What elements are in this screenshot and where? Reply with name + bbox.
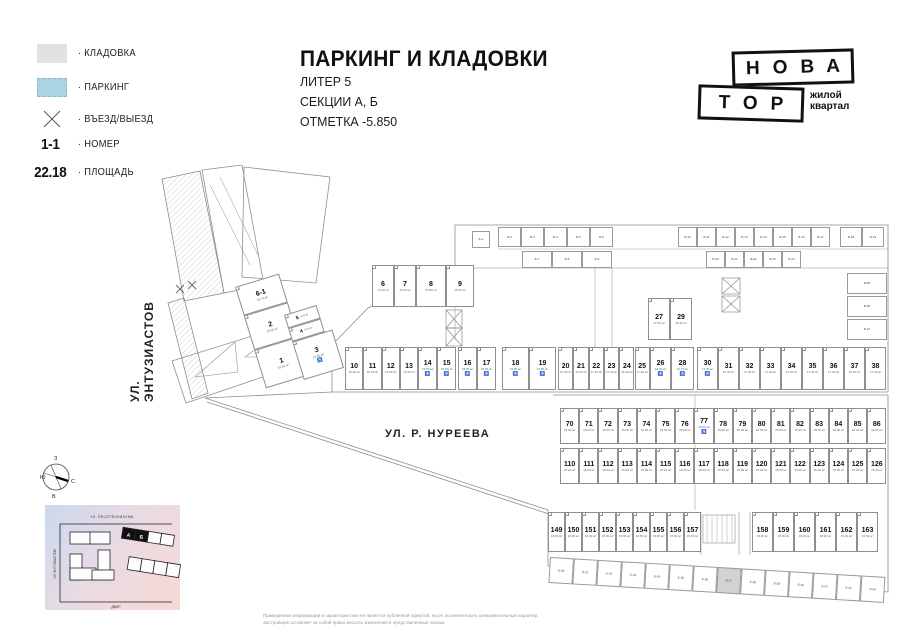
stall-number: 15 [443, 360, 451, 367]
stall-number: 71 [585, 421, 593, 428]
parking-stall-75: 7515.00 м² [656, 408, 675, 444]
stall-area: 15.00 м² [813, 429, 824, 432]
stall-area: 18.00 м² [799, 535, 810, 538]
stall-area: 15.00 м² [670, 535, 681, 538]
parking-stall-26: 2618.00 м²♿ [650, 347, 671, 390]
page-title: ПАРКИНГ И КЛАДОВКИ [300, 46, 548, 72]
stall-number: 85 [854, 421, 862, 428]
parking-stall-153: 15315.00 м² [616, 512, 633, 552]
stall-number: 33 [767, 363, 775, 370]
stall-number: 156 [670, 527, 682, 534]
parking-stall-24: 2415.30 м² [619, 347, 634, 390]
stall-area: 15.30 м² [723, 371, 734, 374]
parking-stall-162: 16215.00 м² [836, 512, 857, 552]
parking-stall-163: 16315.50 м² [857, 512, 878, 552]
parking-stall-33: 3317.40 м² [760, 347, 781, 390]
title-block: ПАРКИНГ И КЛАДОВКИ ЛИТЕР 5 СЕКЦИИ А, Б О… [300, 46, 561, 132]
disclaimer-line-1: Приведенная информация и характеристики … [263, 612, 603, 619]
stall-number: 6 [381, 281, 385, 288]
stall-number: 112 [602, 461, 613, 468]
stall-number: 23 [608, 363, 616, 370]
parking-stall-121: 12115.00 м² [771, 448, 790, 484]
parking-stall-72: 7215.00 м² [598, 408, 617, 444]
stall-area: 15.00 м² [756, 469, 767, 472]
storage-cell-Б-23: Б-23 [763, 251, 782, 268]
stall-area: 15.00 м² [871, 429, 882, 432]
stall-number: 111 [583, 461, 594, 468]
stall-area: 15.00 м² [794, 429, 805, 432]
stall-number: 160 [799, 527, 811, 534]
stall-number: 153 [619, 527, 631, 534]
stall-area: 15.00 м² [564, 429, 575, 432]
stall-number: 82 [796, 421, 804, 428]
storage-cell-Б-34: Б-34 [644, 563, 669, 590]
storage-swatch [37, 44, 67, 63]
parking-stall-160: 16018.00 м² [794, 512, 815, 552]
parking-stall-10: 1016.20 м² [345, 347, 363, 390]
parking-stall-22: 2217.40 м² [589, 347, 604, 390]
stall-area: 15.00 м² [737, 429, 748, 432]
storage-cell-Б-6: Б-6 [590, 227, 613, 247]
stall-area: 15.00 м² [564, 469, 575, 472]
storage-cell-Б-1: Б-1 [472, 231, 490, 248]
stall-area: 16.20 м² [348, 371, 359, 374]
parking-stall-110: 11015.00 м² [560, 448, 579, 484]
storage-cell-Б-30: Б-30 [548, 557, 573, 584]
parking-stall-116: 11615.00 м² [675, 448, 694, 484]
stall-area: 16.50 м² [636, 535, 647, 538]
stall-area: 15.00 м² [737, 469, 748, 472]
legend-area-example: 22.18 [35, 164, 66, 181]
parking-stall-81: 8115.00 м² [771, 408, 790, 444]
parking-stall-83: 8315.00 м² [810, 408, 829, 444]
wheelchair-icon: ♿ [317, 358, 324, 364]
svg-text:Ю: Ю [40, 475, 46, 481]
parking-stall-32: 3217.40 м² [739, 347, 760, 390]
stall-area: 15.00 м² [794, 469, 805, 472]
parking-stall-113: 11315.00 м² [618, 448, 637, 484]
stall-number: 120 [756, 461, 768, 468]
parking-stall-17: 1718.00 м²♿ [477, 347, 496, 390]
parking-stall-155: 15515.00 м² [650, 512, 667, 552]
storage-cell-Б-36: Б-36 [692, 566, 717, 593]
stall-number: 21 [577, 363, 585, 370]
storage-cell-Б-27: Б-27 [847, 319, 887, 340]
svg-text:С: С [71, 479, 75, 485]
stall-number: 27 [655, 314, 663, 321]
parking-stall-114: 11415.00 м² [637, 448, 656, 484]
storage-cell-Б-5: Б-5 [567, 227, 590, 247]
parking-stall-150: 15018.00 м² [565, 512, 582, 552]
stall-area: 17.40 м² [606, 371, 617, 374]
parking-stall-34: 3415.30 м² [781, 347, 802, 390]
stall-number: 9 [458, 281, 462, 288]
stall-area: 15.00 м² [602, 429, 613, 432]
stall-number: 36 [830, 363, 838, 370]
parking-stall-124: 12415.00 м² [829, 448, 848, 484]
stall-area: 17.40 м² [560, 371, 571, 374]
entry-exit-icon [35, 108, 69, 130]
parking-stall-152: 15215.00 м² [599, 512, 616, 552]
stall-area: 18.00 м² [585, 535, 596, 538]
storage-cell-Б-38: Б-38 [740, 568, 765, 595]
parking-stall-9: 915.00 м² [446, 265, 474, 307]
wheelchair-icon: ♿ [658, 372, 664, 377]
parking-stall-70: 7015.00 м² [560, 408, 579, 444]
stall-number: 113 [622, 461, 633, 468]
storage-cell-Б-4: Б-4 [544, 227, 567, 247]
stall-number: 17 [483, 360, 491, 367]
parking-stall-74: 7415.00 м² [637, 408, 656, 444]
storage-cell-Б-2: Б-2 [498, 227, 521, 247]
stall-number: 25 [638, 363, 646, 370]
storage-cell-Б-7: Б-7 [522, 251, 552, 268]
stall-number: 78 [719, 421, 727, 428]
stall-number: 29 [677, 314, 685, 321]
stall-area: 15.00 м² [602, 535, 613, 538]
stall-area: 17.00 м² [653, 322, 664, 325]
stall-area: 15.30 м² [621, 371, 632, 374]
logo-tagline: жилой квартал [810, 90, 849, 112]
storage-cell-Б-33: Б-33 [620, 561, 645, 588]
stall-number: 31 [725, 363, 733, 370]
parking-stall-161: 16118.00 м² [815, 512, 836, 552]
stall-number: 150 [568, 527, 580, 534]
stall-area: 15.00 м² [852, 429, 863, 432]
stall-area: 15.00 м² [602, 469, 613, 472]
stall-number: 8 [429, 281, 433, 288]
storage-cell-Б-42: Б-42 [836, 574, 861, 601]
parking-stall-154: 15416.50 м² [633, 512, 650, 552]
storage-cell-Б-40: Б-40 [788, 571, 813, 598]
subtitle-liter: ЛИТЕР 5 [300, 72, 548, 92]
stall-number: 163 [862, 527, 874, 534]
stall-area: 8.00 м² [304, 327, 313, 332]
stall-number: 126 [871, 461, 883, 468]
stall-area: 8.00 м² [300, 314, 309, 319]
stall-area: 15.00 м² [775, 429, 786, 432]
storage-cell-Б-37: Б-37 [716, 567, 741, 594]
parking-stall-120: 12015.00 м² [752, 448, 771, 484]
stall-number: 149 [551, 527, 563, 534]
stall-number: 77 [700, 418, 708, 425]
svg-text:УЛ. ЭНТУЗИАСТОВ: УЛ. ЭНТУЗИАСТОВ [53, 549, 57, 578]
parking-stall-149: 14918.00 м² [548, 512, 565, 552]
storage-cell-Б-19: Б-19 [862, 227, 884, 247]
storage-cell-Б-11: Б-11 [697, 227, 716, 247]
stall-number: 80 [758, 421, 766, 428]
stall-area: 16.20 м² [403, 371, 414, 374]
parking-stall-82: 8215.00 м² [790, 408, 809, 444]
parking-stall-14: 1415.50 м²♿ [418, 347, 437, 390]
parking-swatch [37, 78, 67, 97]
stall-number: 122 [794, 461, 806, 468]
floor-plan: 614.40 м²715.00 м²823.80 м²915.00 м²2717… [150, 165, 890, 600]
stall-number: 151 [585, 527, 597, 534]
stall-area: 17.40 м² [870, 371, 881, 374]
storage-cell-Б-25: Б-25 [847, 273, 887, 294]
parking-stall-25: 2517.40 м² [635, 347, 650, 390]
parking-stall-38: 3817.40 м² [865, 347, 886, 390]
parking-stall-19: 1921.80 м²♿ [529, 347, 556, 390]
storage-cell-Б-31: Б-31 [572, 558, 597, 585]
stall-area: 15.30 м² [575, 371, 586, 374]
stall-number: 125 [852, 461, 864, 468]
storage-cell-Б-18: Б-18 [840, 227, 862, 247]
stall-area: 17.40 м² [744, 371, 755, 374]
wheelchair-icon: ♿ [484, 372, 490, 377]
stall-area: 15.00 м² [641, 429, 652, 432]
stall-number: 72 [604, 421, 612, 428]
parking-stall-12: 1216.20 м² [382, 347, 400, 390]
storage-cell-Б-32: Б-32 [596, 560, 621, 587]
storage-cell-Б-3: Б-3 [521, 227, 544, 247]
wheelchair-icon: ♿ [425, 372, 431, 377]
stall-area: 14.40 м² [377, 289, 388, 292]
parking-stall-125: 12515.00 м² [848, 448, 867, 484]
storage-cell-Б-12: Б-12 [716, 227, 735, 247]
stall-number: 74 [642, 421, 650, 428]
stall-number: 155 [653, 527, 665, 534]
parking-stall-151: 15118.00 м² [582, 512, 599, 552]
wheelchair-icon: ♿ [465, 372, 471, 377]
parking-stall-84: 8415.00 м² [829, 408, 848, 444]
stall-number: 123 [813, 461, 825, 468]
parking-stall-7: 715.00 м² [394, 265, 416, 307]
parking-stall-157: 15715.00 м² [684, 512, 701, 552]
stall-area: 15.00 м² [841, 535, 852, 538]
wheelchair-icon: ♿ [444, 372, 450, 377]
stall-area: 15.00 м² [833, 429, 844, 432]
parking-stall-76: 7615.00 м² [675, 408, 694, 444]
parking-stall-78: 7815.00 м² [714, 408, 733, 444]
stall-area: 15.00 м² [583, 469, 594, 472]
stall-area: 18.00 м² [568, 535, 579, 538]
parking-stall-122: 12215.00 м² [790, 448, 809, 484]
stall-area: 17.40 м² [591, 371, 602, 374]
parking-stall-21: 2115.30 м² [573, 347, 588, 390]
storage-cell-Б-15: Б-15 [773, 227, 792, 247]
stall-number: 76 [681, 421, 689, 428]
parking-stall-79: 7915.00 м² [733, 408, 752, 444]
stall-area: 15.00 м² [679, 429, 690, 432]
stall-number: 14 [424, 360, 432, 367]
stall-area: 15.50 м² [862, 535, 873, 538]
stall-area: 15.00 м² [756, 429, 767, 432]
stall-number: 32 [746, 363, 754, 370]
parking-stall-118: 11815.00 м² [714, 448, 733, 484]
stall-area: 15.00 м² [698, 469, 709, 472]
logo-box-bottom: ТОР [697, 84, 804, 122]
stall-area: 15.00 м² [653, 535, 664, 538]
stall-number: 152 [602, 527, 614, 534]
parking-stall-37: 3715.30 м² [844, 347, 865, 390]
parking-stall-73: 7315.00 м² [618, 408, 637, 444]
stall-number: 124 [833, 461, 845, 468]
parking-stall-20: 2017.40 м² [558, 347, 573, 390]
parking-stall-156: 15615.00 м² [667, 512, 684, 552]
stall-number: 83 [815, 421, 823, 428]
disclaimer-line-2: Застройщик оставляет за собой право внос… [263, 619, 603, 626]
storage-cell-Б-26: Б-26 [847, 296, 887, 317]
stall-area: 15.20 м² [675, 322, 686, 325]
stall-number: 159 [778, 527, 790, 534]
location-minimap: З Ю С В УЛ. ЛЕСОТЕХНИКУМА УЛ. ЭНТУЗИАСТО… [40, 452, 190, 617]
svg-text:В: В [52, 494, 56, 500]
storage-cell-Б-14: Б-14 [754, 227, 773, 247]
stall-number: 84 [834, 421, 842, 428]
parking-stall-159: 15915.00 м² [773, 512, 794, 552]
parking-stall-15: 1515.50 м²♿ [437, 347, 456, 390]
stall-number: 161 [820, 527, 832, 534]
parking-stall-117: 11715.00 м² [694, 448, 713, 484]
stall-number: 26 [657, 360, 665, 367]
stall-number: 86 [873, 421, 881, 428]
stall-number: 18 [512, 360, 520, 367]
stall-area: 15.00 м² [871, 469, 882, 472]
stall-number: 110 [564, 461, 575, 468]
storage-cell-Б-20: Б-20 [706, 251, 725, 268]
subtitle-sections: СЕКЦИИ А, Б [300, 92, 548, 112]
novator-logo: НОВА ТОР жилой квартал [690, 40, 870, 125]
storage-cell-Б-39: Б-39 [764, 570, 789, 597]
legend-number-example: 1-1 [35, 136, 66, 153]
legend-area-label: · ПЛОЩАДЬ [78, 167, 134, 178]
stall-area: 29.50 м² [266, 327, 278, 333]
parking-stall-115: 11515.00 м² [656, 448, 675, 484]
stall-number: 34 [788, 363, 796, 370]
stall-number: 158 [757, 527, 769, 534]
parking-stall-8: 823.80 м² [416, 265, 446, 307]
stall-number: 73 [623, 421, 631, 428]
stall-area: 15.00 м² [717, 429, 728, 432]
storage-cell-Б-8: Б-8 [552, 251, 582, 268]
stall-area: 23.80 м² [425, 289, 436, 292]
parking-stall-77: 7715.00 м²♿ [694, 408, 713, 444]
parking-stall-85: 8515.00 м² [848, 408, 867, 444]
stall-area: 15.00 м² [833, 469, 844, 472]
stall-area: 15.30 м² [849, 371, 860, 374]
svg-text:З: З [54, 456, 58, 462]
stall-number: 115 [660, 461, 671, 468]
parking-stall-29: 2915.20 м² [670, 298, 692, 340]
stall-area: 15.00 м² [757, 535, 768, 538]
stall-number: 119 [737, 461, 748, 468]
stall-area: 15.00 м² [775, 469, 786, 472]
stall-number: 37 [851, 363, 859, 370]
stall-number: 38 [872, 363, 880, 370]
storage-cell-Б-43: Б-43 [860, 576, 885, 603]
legend-storage-label: · КЛАДОВКА [78, 48, 136, 59]
stall-number: 79 [738, 421, 746, 428]
stall-number: 75 [662, 421, 670, 428]
legend-number-label: · НОМЕР [78, 139, 120, 150]
stall-area: 15.00 м² [641, 469, 652, 472]
stall-area: 18.00 м² [551, 535, 562, 538]
stall-area: 17.40 м² [807, 371, 818, 374]
stall-number: 16 [464, 360, 472, 367]
svg-text:ДВОР: ДВОР [111, 605, 121, 609]
parking-stall-30: 3017.40 м²♿ [697, 347, 718, 390]
storage-cell-Б-10: Б-10 [678, 227, 697, 247]
stall-area: 15.30 м² [786, 371, 797, 374]
stall-number: 154 [636, 527, 648, 534]
logo-box-top: НОВА [732, 48, 855, 86]
stall-number: 162 [841, 527, 853, 534]
stall-area: 17.40 м² [636, 371, 647, 374]
parking-stall-71: 7115.00 м² [579, 408, 598, 444]
stall-number: 28 [679, 360, 687, 367]
storage-cell-Б-9: Б-9 [582, 251, 612, 268]
stall-number: 81 [777, 421, 785, 428]
stall-number: 70 [566, 421, 574, 428]
stall-number: 13 [405, 363, 413, 370]
stall-area: 16.20 м² [385, 371, 396, 374]
stall-number: 11 [369, 363, 376, 370]
parking-stall-16: 1618.00 м²♿ [458, 347, 477, 390]
stall-number: 7 [403, 281, 407, 288]
parking-stall-158: 15815.00 м² [752, 512, 773, 552]
wheelchair-icon: ♿ [540, 372, 546, 377]
stall-area: 15.00 м² [621, 469, 632, 472]
stall-area: 15.00 м² [687, 535, 698, 538]
legend-entry-label: · ВЪЕЗД/ВЫЕЗД [78, 114, 153, 125]
legend-parking-label: · ПАРКИНГ [78, 82, 129, 93]
parking-stall-126: 12615.00 м² [867, 448, 886, 484]
stall-number: 22 [592, 363, 600, 370]
parking-stall-35: 3517.40 м² [802, 347, 823, 390]
storage-cell-Б-22: Б-22 [744, 251, 763, 268]
parking-stall-18: 1823.80 м²♿ [502, 347, 529, 390]
stall-area: 15.00 м² [621, 429, 632, 432]
parking-stall-123: 12315.00 м² [810, 448, 829, 484]
parking-stall-23: 2317.40 м² [604, 347, 619, 390]
stall-area: 15.00 м² [619, 535, 630, 538]
stall-area: 17.40 м² [828, 371, 839, 374]
stall-number: 10 [350, 363, 358, 370]
stall-number: 30 [704, 360, 712, 367]
stall-area: 16.20 м² [367, 371, 378, 374]
stall-number: 19 [539, 360, 547, 367]
parking-stall-31: 3115.30 м² [718, 347, 739, 390]
stall-area: 15.00 м² [660, 469, 671, 472]
parking-stall-11: 1116.20 м² [363, 347, 381, 390]
storage-cell-Б-24: Б-24 [782, 251, 801, 268]
storage-cell-Б-21: Б-21 [725, 251, 744, 268]
stall-number: 114 [641, 461, 652, 468]
stall-number: 118 [718, 461, 729, 468]
stall-area: 15.00 м² [852, 469, 863, 472]
stall-number: 4 [299, 329, 303, 335]
stall-area: 17.40 м² [765, 371, 776, 374]
stall-area: 15.00 м² [717, 469, 728, 472]
stall-area: 15.00 м² [813, 469, 824, 472]
wheelchair-icon: ♿ [513, 372, 519, 377]
compass-icon: З Ю С В [40, 456, 75, 500]
wheelchair-icon: ♿ [705, 372, 711, 377]
stall-number: 12 [387, 363, 395, 370]
storage-cell-Б-41: Б-41 [812, 573, 837, 600]
stall-number: 157 [687, 527, 699, 534]
stall-number: 117 [698, 461, 709, 468]
storage-cell-Б-13: Б-13 [735, 227, 754, 247]
stall-area: 15.00 м² [454, 289, 465, 292]
stall-number: 24 [623, 363, 631, 370]
parking-stall-112: 11215.00 м² [598, 448, 617, 484]
stall-area: 29.50 м² [277, 363, 289, 369]
stall-number: 121 [775, 461, 787, 468]
storage-cell-Б-35: Б-35 [668, 564, 693, 591]
